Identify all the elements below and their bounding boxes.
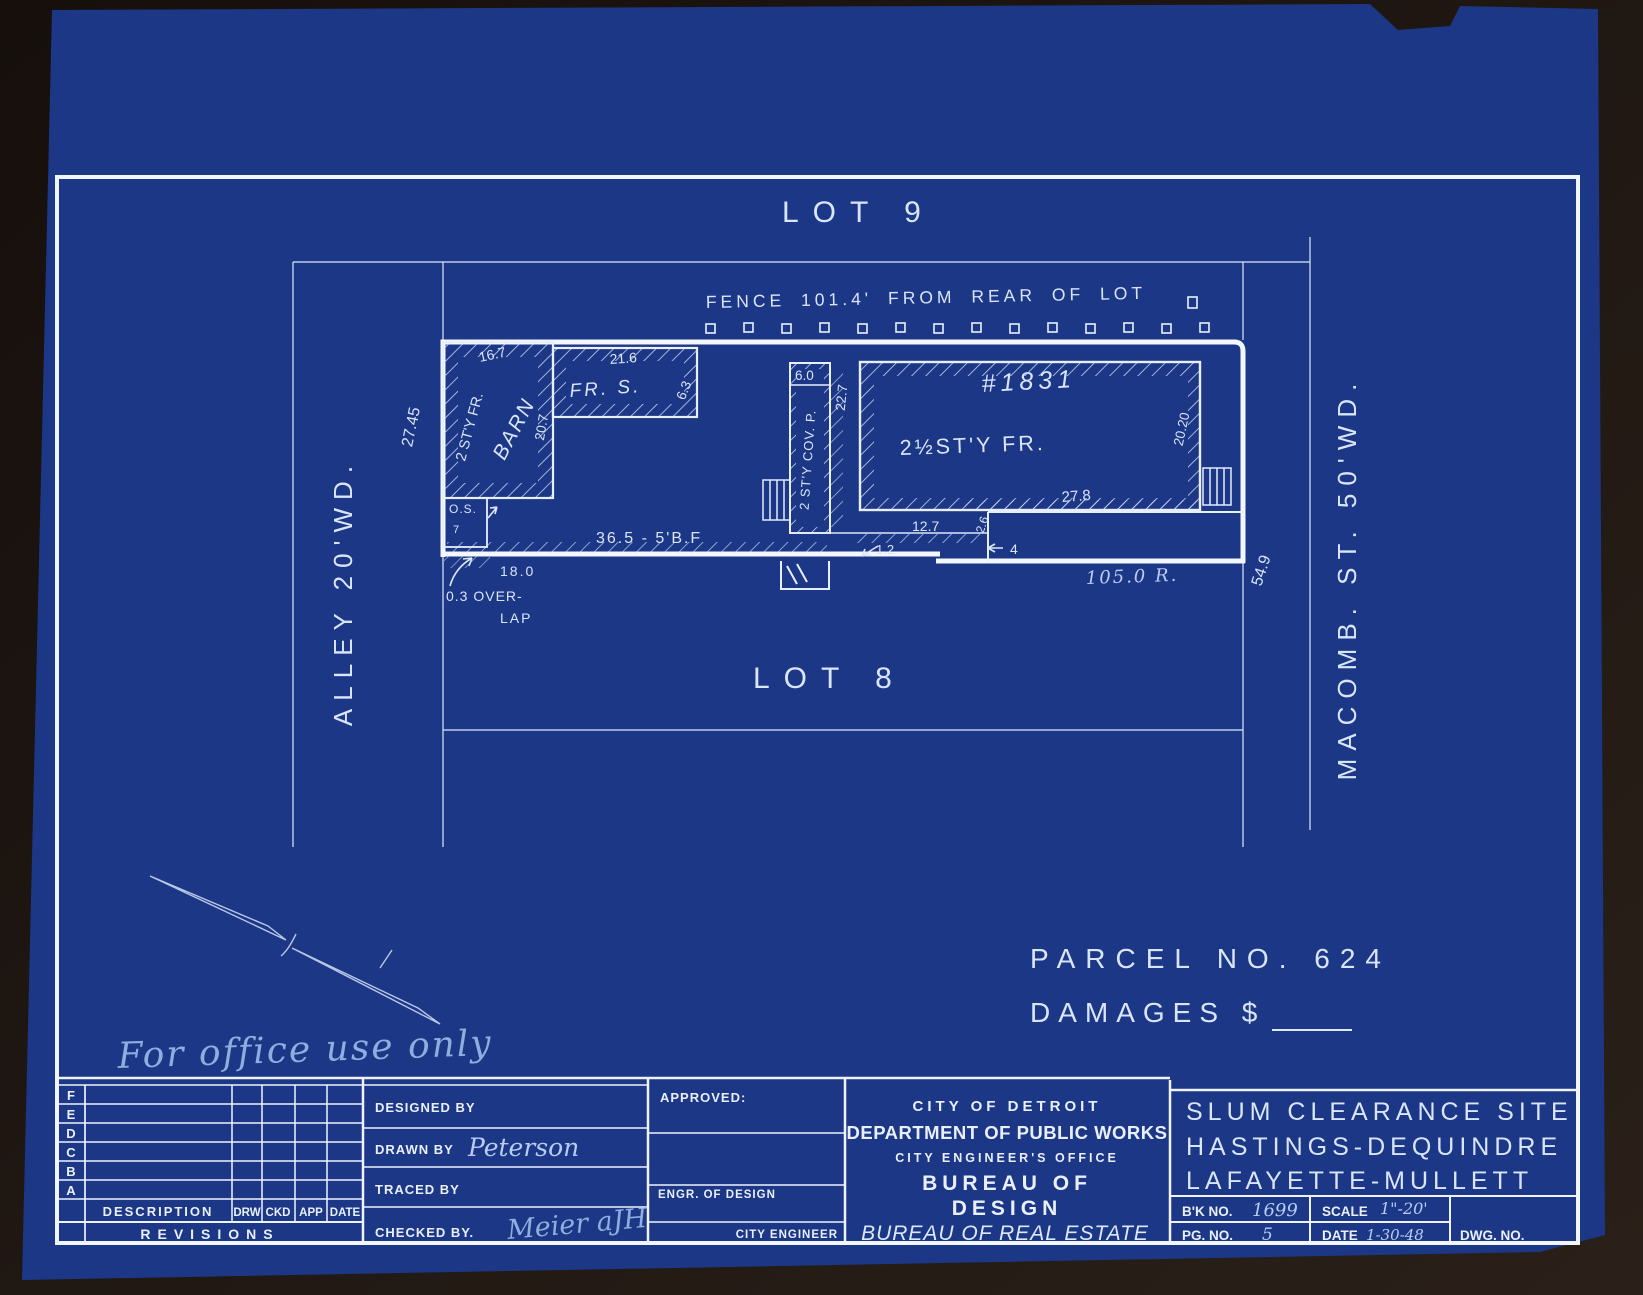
revision-letter: D bbox=[66, 1126, 75, 1141]
dim-22-7: 22.7 bbox=[833, 384, 851, 412]
org-city-of-detroit: CITY OF DETROIT bbox=[913, 1098, 1102, 1115]
date-column-header: DATE bbox=[330, 1207, 361, 1219]
org-bureau-of: BUREAU OF bbox=[922, 1172, 1092, 1195]
dim-21-6: 21.6 bbox=[609, 349, 638, 367]
site-title-line3: LAFAYETTE-MULLETT bbox=[1186, 1167, 1533, 1195]
dim-4: 4 bbox=[1010, 541, 1018, 557]
page-number-value: 5 bbox=[1262, 1225, 1273, 1245]
book-number-value: 1699 bbox=[1252, 1200, 1298, 1221]
lot8-label: LOT 8 bbox=[753, 662, 906, 695]
designed-by-label: DESIGNED BY bbox=[375, 1100, 476, 1115]
drw-column-header: DRW bbox=[233, 1207, 260, 1219]
page-number-label: PG. NO. bbox=[1182, 1228, 1233, 1243]
ckd-column-header: CKD bbox=[266, 1207, 291, 1219]
org-design: DESIGN bbox=[952, 1197, 1063, 1220]
blueprint-photo: LOT 9 LOT 8 FENCE 101.4' FROM REAR OF LO… bbox=[0, 0, 1643, 1295]
book-number-label: B'K NO. bbox=[1182, 1204, 1232, 1219]
revision-letter: C bbox=[66, 1145, 76, 1160]
alley-label: ALLEY 20'WD. bbox=[328, 458, 358, 726]
app-column-header: APP bbox=[299, 1207, 323, 1219]
blueprint-canvas: LOT 9 LOT 8 FENCE 101.4' FROM REAR OF LO… bbox=[0, 0, 1643, 1295]
engr-of-design-label: ENGR. OF DESIGN bbox=[658, 1189, 776, 1201]
scale-label: SCALE bbox=[1322, 1204, 1368, 1219]
dim-12-7: 12.7 bbox=[912, 518, 939, 534]
city-engineer-label: CITY ENGINEER bbox=[736, 1229, 838, 1241]
checked-by-label: CHECKED BY. bbox=[375, 1225, 474, 1240]
scale-value: 1"-20' bbox=[1380, 1199, 1428, 1218]
dim-1-2: 1.2 bbox=[876, 542, 894, 557]
parcel-number-note: PARCEL NO. 624 bbox=[1030, 943, 1391, 974]
lot9-label: LOT 9 bbox=[782, 196, 935, 229]
date-label: DATE bbox=[1322, 1228, 1358, 1243]
approved-label: APPROVED: bbox=[660, 1090, 746, 1105]
traced-by-label: TRACED BY bbox=[375, 1182, 460, 1197]
dim-27-8: 27.8 bbox=[1061, 487, 1091, 506]
damages-note: DAMAGES $ bbox=[1030, 997, 1265, 1028]
org-bureau-of-real-estate: BUREAU OF REAL ESTATE bbox=[861, 1222, 1149, 1245]
house-number-label: #1831 bbox=[981, 365, 1077, 398]
revision-letter: A bbox=[66, 1183, 76, 1198]
org-city-engineers-office: CITY ENGINEER'S OFFICE bbox=[895, 1151, 1119, 1165]
board-fence-label: 36.5 - 5'B.F bbox=[596, 530, 702, 547]
overlap-label-1: 0.3 OVER- bbox=[446, 588, 523, 604]
os-dim-7: 7 bbox=[453, 524, 459, 536]
overlap-label-2: LAP bbox=[500, 610, 532, 626]
os-label: O.S. bbox=[449, 502, 477, 516]
revision-letter: E bbox=[67, 1107, 76, 1122]
revision-letter: F bbox=[67, 1088, 75, 1103]
revisions-title: REVISIONS bbox=[140, 1226, 279, 1242]
dim-105-0: 105.0 R. bbox=[1085, 565, 1178, 589]
drawn-by-label: DRAWN BY bbox=[375, 1142, 454, 1157]
site-title-line1: SLUM CLEARANCE SITE bbox=[1186, 1098, 1573, 1126]
macomb-street-label: MACOMB. ST. 50'WD. bbox=[1332, 376, 1362, 781]
dim-6-0: 6.0 bbox=[795, 368, 814, 383]
date-value: 1-30-48 bbox=[1366, 1226, 1424, 1244]
org-dept-public-works: DEPARTMENT OF PUBLIC WORKS bbox=[847, 1122, 1168, 1143]
drawing-number-label: DWG. NO. bbox=[1460, 1228, 1525, 1243]
revision-letter: B bbox=[66, 1164, 75, 1179]
site-title-line2: HASTINGS-DEQUINDRE bbox=[1186, 1133, 1562, 1161]
dim-18-0: 18.0 bbox=[500, 563, 535, 579]
drawn-by-signature: Peterson bbox=[467, 1133, 579, 1162]
description-column-header: DESCRIPTION bbox=[103, 1204, 214, 1219]
house-story-label: 2½ST'Y FR. bbox=[899, 431, 1046, 460]
